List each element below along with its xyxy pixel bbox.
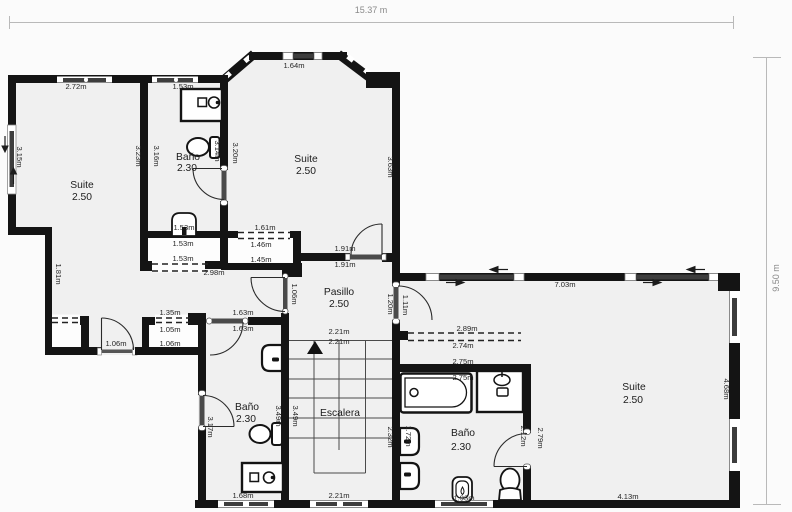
svg-text:4.13m: 4.13m <box>617 492 638 501</box>
svg-text:1.45m: 1.45m <box>250 255 271 264</box>
svg-text:Baño: Baño <box>235 402 259 413</box>
svg-text:2.72m: 2.72m <box>65 82 86 91</box>
svg-text:3.17m: 3.17m <box>206 416 215 437</box>
svg-text:2.21m: 2.21m <box>328 491 349 500</box>
svg-text:2.79m: 2.79m <box>536 427 545 448</box>
svg-text:1.64m: 1.64m <box>283 61 304 70</box>
svg-text:15.37 m: 15.37 m <box>355 5 388 15</box>
svg-text:3.49m: 3.49m <box>274 405 283 426</box>
svg-text:2.21m: 2.21m <box>328 337 349 346</box>
svg-text:1.46m: 1.46m <box>250 240 271 249</box>
svg-text:3.23m: 3.23m <box>134 145 143 166</box>
svg-text:2.75m: 2.75m <box>452 373 473 382</box>
svg-text:2.74m: 2.74m <box>452 341 473 350</box>
svg-text:7.03m: 7.03m <box>554 280 575 289</box>
svg-text:Baño: Baño <box>176 152 200 163</box>
svg-text:2.30: 2.30 <box>236 414 256 425</box>
svg-text:1.72m: 1.72m <box>404 425 413 446</box>
svg-text:1.53m: 1.53m <box>172 239 193 248</box>
svg-text:3.49m: 3.49m <box>291 405 300 426</box>
svg-text:1.06m: 1.06m <box>290 283 299 304</box>
svg-text:1.91m: 1.91m <box>334 244 355 253</box>
svg-text:Suite: Suite <box>294 154 318 165</box>
svg-text:Suite: Suite <box>622 382 646 393</box>
svg-text:2.30: 2.30 <box>451 442 471 453</box>
svg-text:2.21m: 2.21m <box>328 327 349 336</box>
svg-text:3.15m: 3.15m <box>15 146 24 167</box>
svg-text:1.06m: 1.06m <box>105 339 126 348</box>
svg-text:1.63m: 1.63m <box>232 308 253 317</box>
svg-text:1.93m: 1.93m <box>453 494 474 503</box>
svg-text:2.50: 2.50 <box>296 166 316 177</box>
svg-text:Baño: Baño <box>451 428 475 439</box>
svg-text:2.50: 2.50 <box>72 192 92 203</box>
svg-text:Escalera: Escalera <box>320 408 360 419</box>
svg-text:2.32m: 2.32m <box>386 426 395 447</box>
svg-text:2.89m: 2.89m <box>456 324 477 333</box>
svg-text:2.50: 2.50 <box>623 395 643 406</box>
svg-text:1.81m: 1.81m <box>54 263 63 284</box>
svg-text:1.63m: 1.63m <box>232 324 253 333</box>
svg-text:4.68m: 4.68m <box>722 378 731 399</box>
svg-text:2.50: 2.50 <box>329 299 349 310</box>
svg-text:1.11m: 1.11m <box>401 295 410 316</box>
svg-text:1.35m: 1.35m <box>159 308 180 317</box>
svg-text:1.53m: 1.53m <box>172 254 193 263</box>
svg-text:9.50 m: 9.50 m <box>771 264 781 292</box>
svg-text:Pasillo: Pasillo <box>324 287 355 298</box>
svg-text:1.06m: 1.06m <box>159 339 180 348</box>
svg-text:3.14m: 3.14m <box>213 140 222 161</box>
svg-text:3.16m: 3.16m <box>152 145 161 166</box>
svg-text:3.20m: 3.20m <box>231 142 240 163</box>
svg-text:1.68m: 1.68m <box>232 491 253 500</box>
svg-text:2.75m: 2.75m <box>452 357 473 366</box>
svg-text:2.12m: 2.12m <box>519 425 528 446</box>
svg-text:2.98m: 2.98m <box>203 268 224 277</box>
svg-text:1.61m: 1.61m <box>254 223 275 232</box>
svg-text:3.63m: 3.63m <box>386 156 395 177</box>
svg-text:1.20m: 1.20m <box>386 293 395 314</box>
svg-text:1.53m: 1.53m <box>173 223 194 232</box>
svg-text:2.30: 2.30 <box>177 163 197 174</box>
svg-text:1.05m: 1.05m <box>159 325 180 334</box>
svg-text:1.53m: 1.53m <box>172 82 193 91</box>
svg-text:Suite: Suite <box>70 180 94 191</box>
svg-text:1.91m: 1.91m <box>334 260 355 269</box>
